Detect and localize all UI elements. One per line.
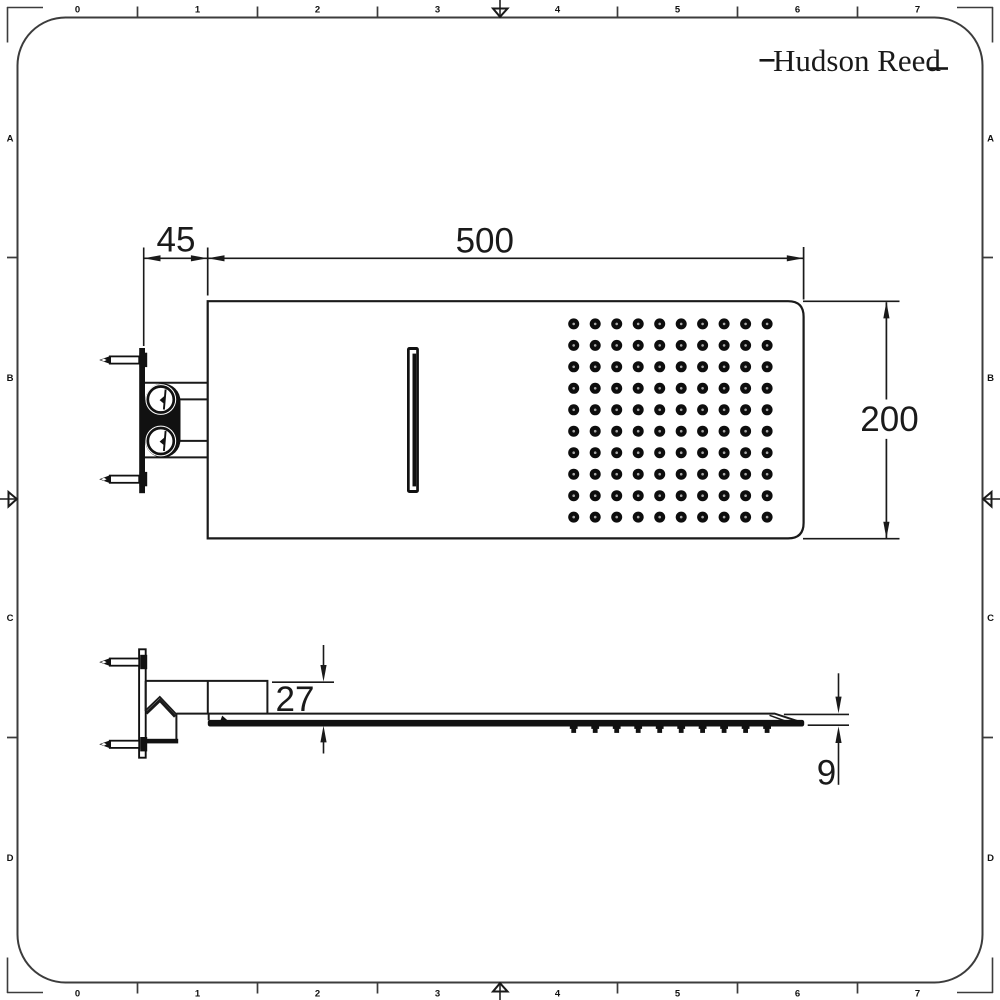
svg-text:200: 200	[860, 400, 918, 439]
svg-text:2: 2	[315, 989, 320, 1000]
svg-text:B: B	[987, 373, 994, 384]
svg-text:0: 0	[75, 989, 80, 1000]
svg-text:4: 4	[555, 5, 561, 16]
svg-text:45: 45	[157, 221, 196, 260]
svg-text:1: 1	[195, 989, 201, 1000]
svg-text:Hudson Reed: Hudson Reed	[773, 43, 941, 78]
svg-text:4: 4	[555, 989, 561, 1000]
svg-text:3: 3	[435, 989, 440, 1000]
svg-text:7: 7	[915, 989, 920, 1000]
svg-text:D: D	[987, 853, 994, 864]
svg-text:B: B	[7, 373, 14, 384]
svg-text:A: A	[987, 134, 994, 145]
svg-text:7: 7	[915, 5, 920, 16]
svg-text:1: 1	[195, 5, 201, 16]
svg-text:C: C	[987, 613, 994, 624]
svg-text:9: 9	[817, 754, 836, 793]
svg-text:0: 0	[75, 5, 80, 16]
svg-text:6: 6	[795, 989, 800, 1000]
svg-text:2: 2	[315, 5, 320, 16]
svg-text:6: 6	[795, 5, 800, 16]
svg-text:500: 500	[456, 222, 514, 261]
svg-text:D: D	[7, 853, 14, 864]
svg-text:5: 5	[675, 989, 681, 1000]
svg-text:5: 5	[675, 5, 681, 16]
svg-text:C: C	[7, 613, 14, 624]
svg-text:27: 27	[276, 680, 315, 719]
svg-text:3: 3	[435, 5, 440, 16]
svg-text:A: A	[7, 134, 14, 145]
